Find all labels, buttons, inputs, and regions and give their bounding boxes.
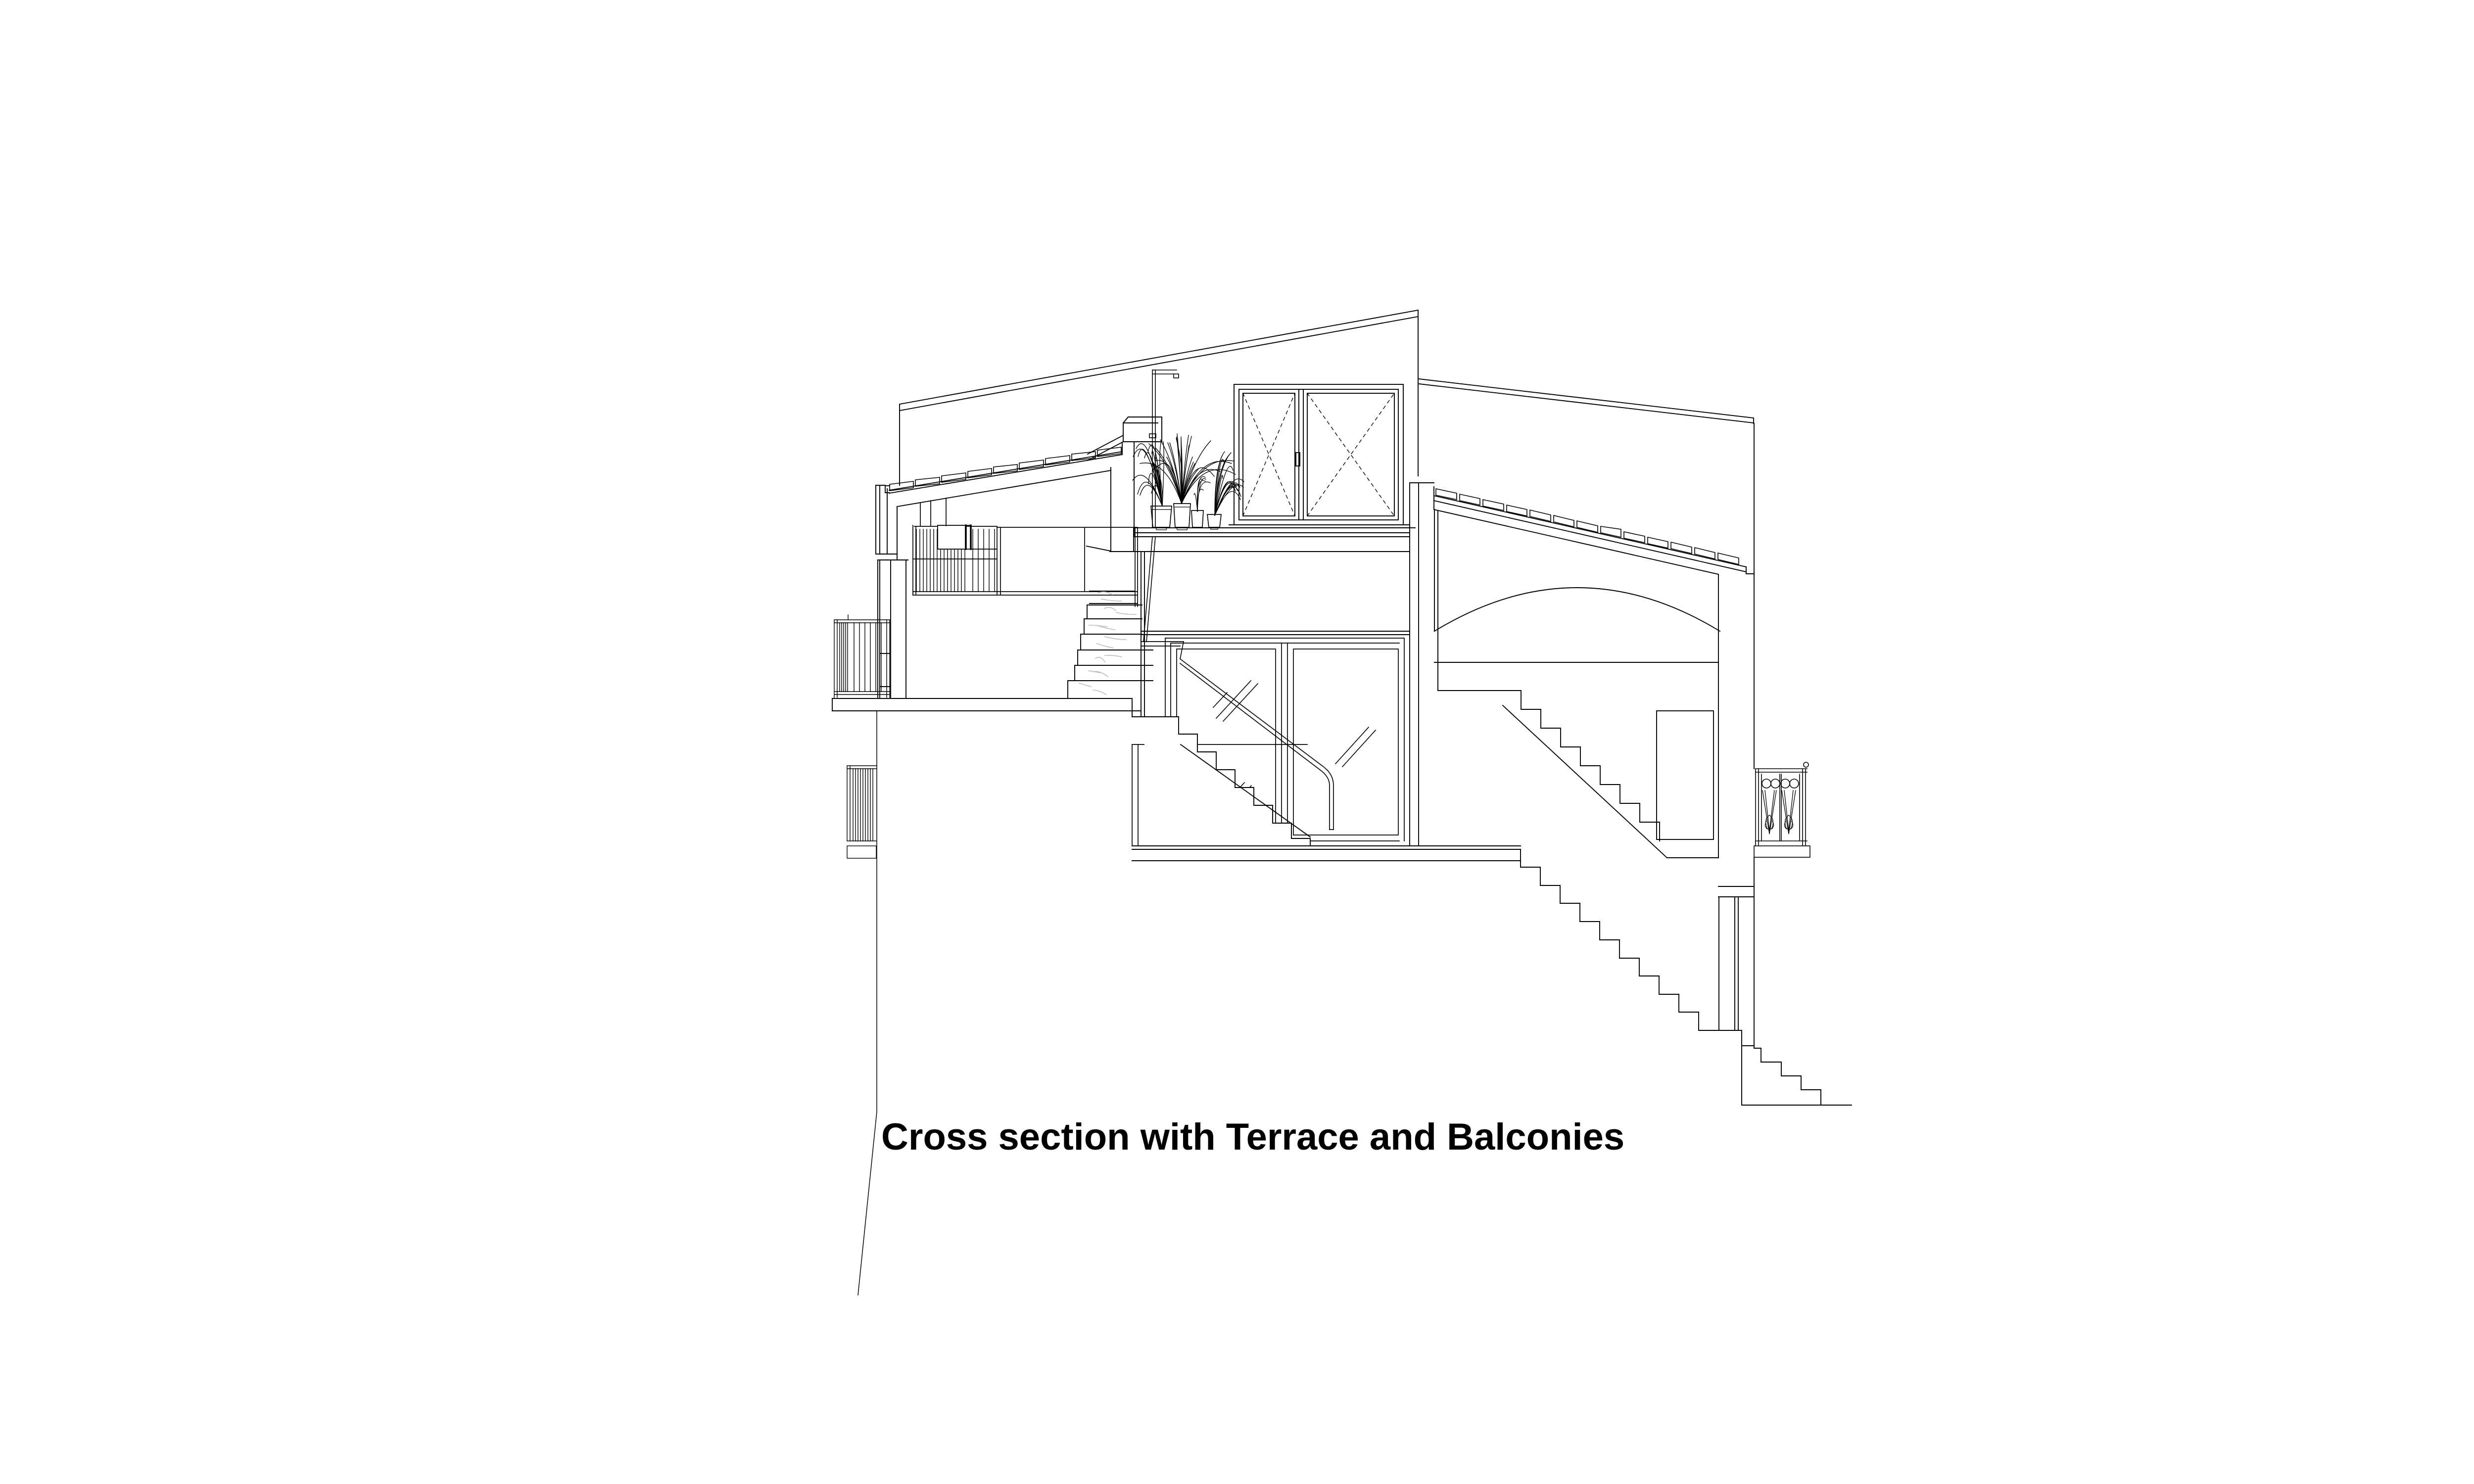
svg-text:Cross section with Terrace and: Cross section with Terrace and Balconies — [881, 1116, 1624, 1158]
